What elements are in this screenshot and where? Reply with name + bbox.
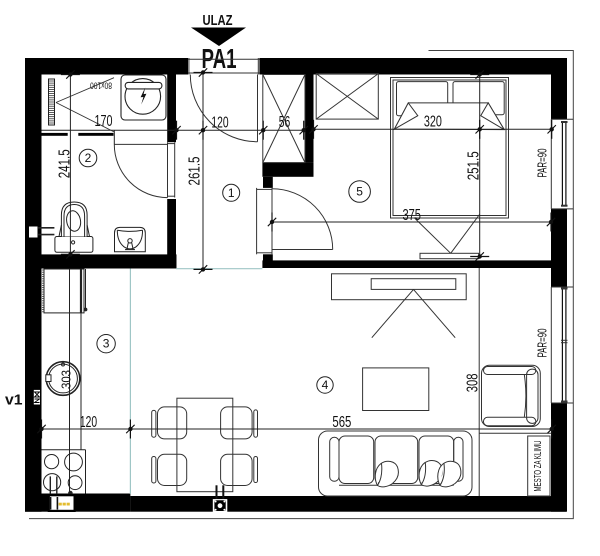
svg-text:80x100: 80x100	[90, 80, 112, 91]
svg-text:PAR=90: PAR=90	[535, 149, 550, 178]
svg-text:3: 3	[103, 337, 110, 351]
svg-text:PAR=90: PAR=90	[535, 329, 550, 358]
svg-text:320: 320	[424, 114, 442, 131]
svg-text:120: 120	[211, 114, 228, 131]
svg-text:2: 2	[85, 151, 92, 165]
svg-text:5: 5	[356, 185, 363, 199]
svg-text:308: 308	[465, 373, 482, 392]
svg-text:251.5: 251.5	[466, 151, 483, 180]
svg-text:4: 4	[322, 378, 329, 392]
svg-text:303: 303	[60, 370, 74, 389]
svg-text:565: 565	[332, 414, 351, 431]
svg-text:120: 120	[80, 414, 97, 431]
svg-text:375: 375	[402, 207, 421, 224]
svg-text:241.5: 241.5	[56, 149, 73, 178]
svg-text:170: 170	[95, 113, 113, 130]
svg-text:261.5: 261.5	[187, 156, 204, 185]
svg-text:v1: v1	[5, 392, 23, 409]
svg-text:56: 56	[279, 114, 291, 131]
svg-text:MESTO ZA KLIMU: MESTO ZA KLIMU	[532, 441, 544, 492]
svg-text:1: 1	[228, 186, 235, 200]
svg-text:ULAZ: ULAZ	[203, 12, 233, 29]
